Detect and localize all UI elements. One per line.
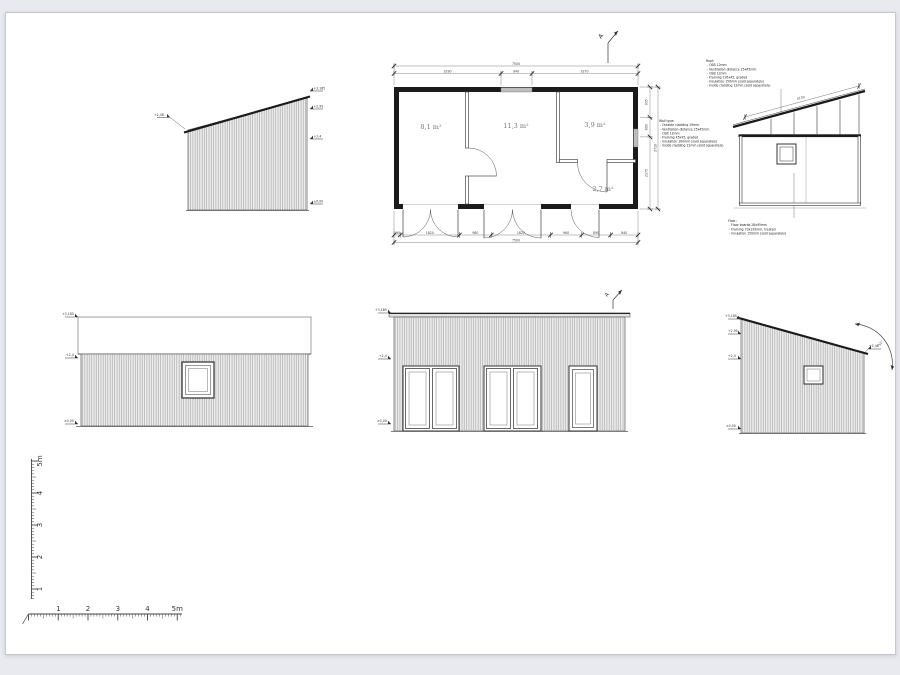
room-label: 3,9 m² bbox=[584, 121, 606, 129]
scale-label: 5m bbox=[36, 455, 44, 466]
left-side-elevation: +2,48 +3,185 +2,95 +2,4 ±0,00 bbox=[154, 87, 325, 211]
dim-segment: 840 bbox=[621, 231, 627, 235]
section-letter: A bbox=[604, 291, 611, 298]
level-label: +2,4 bbox=[728, 354, 736, 358]
level-label: +2,4 bbox=[379, 354, 387, 358]
roof-angle-label: 15° bbox=[878, 339, 885, 346]
scale-label: 5m bbox=[172, 605, 183, 613]
level-label: ±0,00 bbox=[314, 200, 324, 204]
rear-elevation: +3,185 +2,4 ±0,00 bbox=[62, 312, 313, 427]
double-door-2 bbox=[484, 366, 541, 431]
roof-dim: 4130 bbox=[796, 95, 805, 101]
section-letter: A bbox=[597, 32, 606, 40]
scale-label: 3 bbox=[36, 523, 44, 527]
architectural-drawing: +2,48 +3,185 +2,95 +2,4 ±0,00 A bbox=[6, 13, 897, 656]
wall-notes: Wall type: - Outside cladding 19mm - Ven… bbox=[659, 119, 723, 148]
level-label: +2,4 bbox=[66, 353, 74, 357]
dim-segment: 3270 bbox=[580, 70, 588, 74]
dim-segment: 890 bbox=[593, 231, 599, 235]
drawing-sheet: +2,48 +3,185 +2,95 +2,4 ±0,00 A bbox=[5, 12, 896, 655]
dim-segment: 1820 bbox=[426, 231, 434, 235]
level-label: +3,185 bbox=[725, 314, 737, 318]
room-label: 2,7 m² bbox=[592, 185, 614, 193]
single-door bbox=[569, 366, 597, 431]
level-label: +3,185 bbox=[375, 308, 387, 312]
scale-label: 2 bbox=[36, 555, 44, 559]
dim-segment: 980 bbox=[472, 231, 478, 235]
level-label: ±0,00 bbox=[726, 424, 736, 428]
scale-bar-vertical: 5m 4 3 2 1 bbox=[32, 455, 45, 599]
level-label: +2,95 bbox=[728, 329, 738, 333]
plan-window-right bbox=[634, 129, 638, 147]
dim-segment: 935 bbox=[645, 99, 649, 105]
section-mark-a-icon: A bbox=[597, 30, 619, 63]
scale-label: 2 bbox=[86, 605, 90, 613]
level-label: +2,4 bbox=[314, 135, 322, 139]
plan-window-top bbox=[501, 88, 532, 92]
floor-notes: Floor: - Floor boards 28x95mm - Framing … bbox=[728, 219, 786, 235]
note-line: - Inside cladding 12mm (sold separately) bbox=[707, 84, 770, 88]
section-mark-a-icon: A bbox=[604, 289, 623, 309]
dim-total-bottom: 7500 bbox=[512, 238, 520, 242]
note-line: - Inside cladding 12mm (sold separately) bbox=[660, 144, 723, 148]
note-line: - Insulation 150mm (sold separately) bbox=[729, 231, 786, 235]
floor-plan: A bbox=[392, 30, 661, 246]
front-elevation: +3,185 +2,4 ±0,00 A bbox=[375, 289, 630, 432]
level-label: ±0,00 bbox=[377, 419, 387, 423]
dim-segment: 3290 bbox=[443, 70, 451, 74]
dim-segment: 190 bbox=[394, 231, 400, 235]
dim-segment: 960 bbox=[563, 231, 569, 235]
level-label: +3,185 bbox=[314, 87, 326, 91]
scale-bar-horizontal: 1 2 3 4 5m bbox=[23, 605, 184, 624]
scale-label: 1 bbox=[56, 605, 60, 613]
section-floor bbox=[740, 203, 861, 206]
section-view: Roof: - OSB 12mm - Ventilation distance … bbox=[659, 59, 866, 235]
dim-segment: 1820 bbox=[517, 231, 525, 235]
scale-label: 4 bbox=[36, 490, 44, 495]
dim-segment: 940 bbox=[513, 70, 519, 74]
right-side-elevation: +3,185 +2,95 +2,4 ±0,00 +2,48 15° bbox=[725, 314, 894, 434]
section-wall-right bbox=[858, 136, 861, 205]
section-wall-left bbox=[740, 136, 743, 205]
scale-label: 4 bbox=[145, 605, 150, 613]
level-label: ±0,00 bbox=[64, 419, 74, 423]
level-label: +2,95 bbox=[314, 105, 324, 109]
section-wall-plate bbox=[739, 134, 862, 137]
dim-total-top: 7500 bbox=[512, 62, 520, 66]
dim-segment: 600 bbox=[645, 124, 649, 130]
room-label: 8,1 m² bbox=[420, 123, 442, 131]
room-label: 11,3 m² bbox=[503, 122, 529, 130]
roof-surface bbox=[78, 317, 311, 354]
level-label: +3,185 bbox=[62, 312, 74, 316]
double-door-1 bbox=[403, 366, 459, 431]
roof-notes: Roof: - OSB 12mm - Ventilation distance … bbox=[706, 59, 770, 88]
dim-total-right: 3710 bbox=[654, 144, 658, 152]
level-label: +2,48 bbox=[154, 113, 164, 117]
scale-label: 3 bbox=[116, 605, 120, 613]
dim-segment: 2175 bbox=[645, 169, 649, 177]
scale-label: 1 bbox=[36, 587, 44, 591]
